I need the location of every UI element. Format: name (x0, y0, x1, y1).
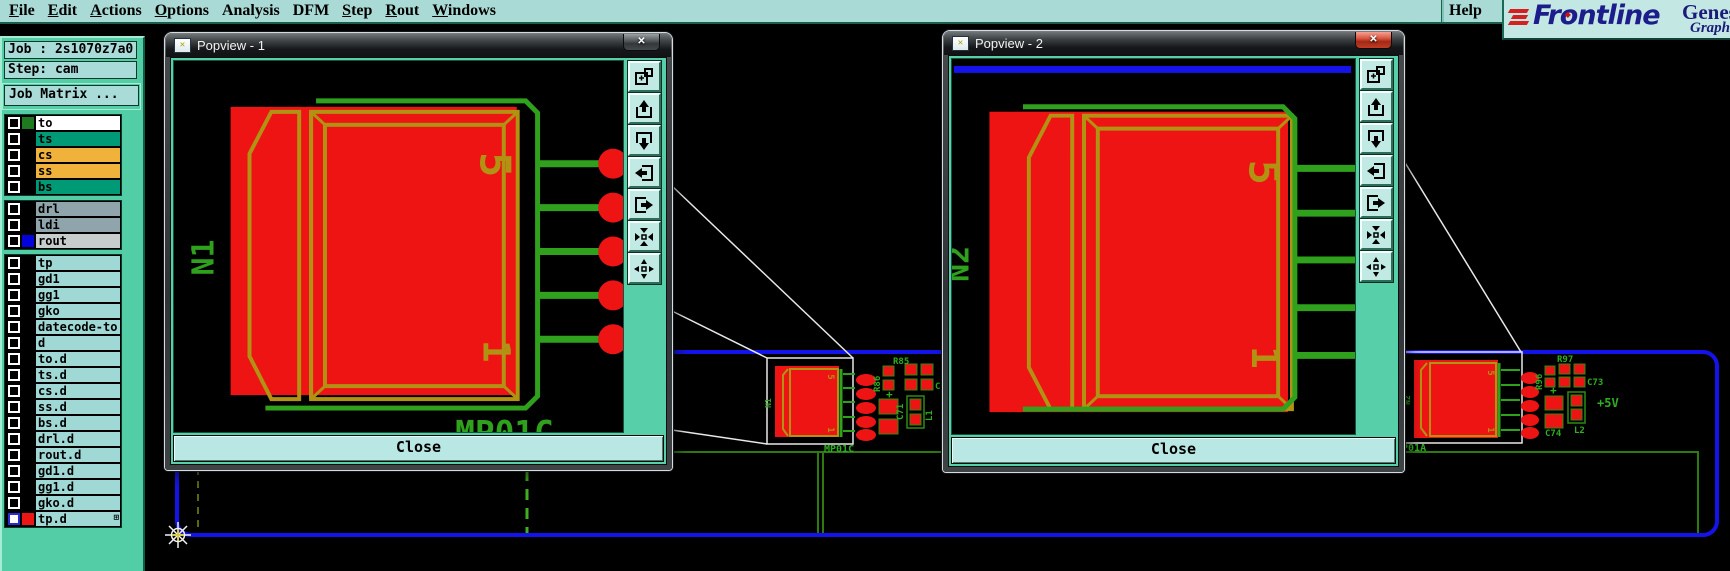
refdes-label: L1 (925, 410, 935, 421)
layer-color-swatch[interactable] (22, 433, 34, 445)
layer-visibility-checkbox[interactable] (8, 337, 20, 349)
layer-name-label[interactable]: bs.d (35, 415, 121, 431)
layer-color-swatch[interactable] (22, 149, 34, 161)
layer-color-swatch[interactable] (22, 165, 34, 177)
layer-visibility-checkbox[interactable] (8, 273, 20, 285)
layer-row-bs.d[interactable]: bs.d (5, 415, 121, 431)
layer-visibility-checkbox[interactable] (8, 117, 20, 129)
layer-color-swatch[interactable] (22, 203, 34, 215)
arrows-out-button[interactable] (1360, 251, 1393, 282)
refdes-label: R97 (1557, 355, 1573, 365)
layer-name-label[interactable]: drl.d (35, 431, 121, 447)
component-n2[interactable]: N2 5 1 (1403, 360, 1520, 438)
layer-color-swatch[interactable] (22, 401, 34, 413)
layer-name-label[interactable]: ss (35, 163, 121, 179)
new-view-button[interactable] (628, 61, 661, 92)
component-pins (538, 164, 609, 340)
footprint-label: MP01C (455, 414, 554, 432)
layer-color-swatch[interactable] (22, 257, 34, 269)
window-icon: ✕ (174, 38, 191, 53)
layer-row-d[interactable]: d (5, 335, 121, 351)
layer-name-label[interactable]: ldi (35, 217, 121, 233)
menu-separator (1441, 0, 1444, 22)
layer-color-swatch[interactable] (22, 513, 34, 525)
layer-row-cs[interactable]: cs (5, 147, 121, 163)
layer-color-swatch[interactable] (22, 369, 34, 381)
layer-row-gg1.d[interactable]: gg1.d (5, 479, 121, 495)
layer-row-tp.d[interactable]: tp.d⊞ (5, 511, 121, 527)
menu-file[interactable]: File (9, 2, 35, 20)
mini-pin5-label: 5 (825, 374, 835, 379)
layer-color-swatch[interactable] (22, 449, 34, 461)
layer-row-ss.d[interactable]: ss.d (5, 399, 121, 415)
arrows-out-button[interactable] (628, 253, 661, 284)
refdes-label: N1 (187, 239, 222, 275)
refdes-label: R96 (1535, 374, 1545, 390)
frontline-speedlines-icon (1509, 9, 1528, 27)
layer-color-swatch[interactable] (22, 497, 34, 509)
job-field[interactable]: Job : 2s1070z7a0 (4, 41, 137, 59)
component-n1[interactable]: N1 5 1 (764, 366, 855, 437)
layer-color-swatch[interactable] (22, 235, 34, 247)
polarity-plus-label: + (1550, 384, 1557, 397)
layer-visibility-checkbox[interactable] (8, 203, 20, 215)
pan-down-button[interactable] (628, 125, 661, 156)
layer-row-ts.d[interactable]: ts.d (5, 367, 121, 383)
layer-row-to[interactable]: to (5, 115, 121, 131)
layer-visibility-checkbox[interactable] (8, 149, 20, 161)
layer-name-label[interactable]: tp (35, 255, 121, 271)
refdes-label: C71 (896, 404, 906, 420)
layer-visibility-checkbox[interactable] (8, 369, 20, 381)
menu-bar: FileEditActionsOptionsAnalysisDFMStepRou… (0, 0, 1730, 24)
layer-color-swatch[interactable] (22, 133, 34, 145)
layer-name-label[interactable]: ss.d (35, 399, 121, 415)
job-matrix-button[interactable]: Job Matrix ... (4, 85, 139, 106)
layer-row-rout.d[interactable]: rout.d (5, 447, 121, 463)
layer-row-gd1.d[interactable]: gd1.d (5, 463, 121, 479)
layer-name-label[interactable]: tp.d⊞ (35, 511, 121, 527)
menu-dfm[interactable]: DFM (293, 2, 329, 20)
close-button[interactable]: Close (951, 437, 1396, 464)
pin1-label: 1 (1243, 346, 1287, 369)
pan-right-button[interactable] (1360, 187, 1393, 218)
menu-actions[interactable]: Actions (90, 2, 142, 20)
polarity-plus-label: + (886, 388, 893, 401)
pan-left-button[interactable] (1360, 155, 1393, 186)
refdes-label: C73 (1587, 378, 1603, 388)
layer-color-swatch[interactable] (22, 481, 34, 493)
layer-name-label[interactable]: bs (35, 179, 121, 195)
layer-visibility-checkbox[interactable] (8, 181, 20, 193)
layer-visibility-checkbox[interactable] (8, 497, 20, 509)
layer-visibility-checkbox[interactable] (8, 235, 20, 247)
genesis-cam-app: N1 5 1 R85 R86 C72 + C71 (0, 0, 1730, 571)
layer-visibility-checkbox[interactable] (8, 433, 20, 445)
step-field[interactable]: Step: cam (4, 61, 137, 79)
layer-name-label[interactable]: gko.d (35, 495, 121, 511)
popview2-body: N2 5 1 Close (948, 55, 1399, 467)
popview2-canvas[interactable]: N2 5 1 (951, 58, 1356, 435)
layer-color-swatch[interactable] (22, 117, 34, 129)
pan-left-button[interactable] (628, 157, 661, 188)
layer-row-ss[interactable]: ss (5, 163, 121, 179)
layer-color-swatch[interactable] (22, 273, 34, 285)
layer-color-swatch[interactable] (22, 219, 34, 231)
pin-pads (598, 149, 623, 354)
layer-name-label[interactable]: drl (35, 201, 121, 217)
layer-list: totscsssbsdrlldirouttpgd1gg1gkodatecode-… (4, 114, 122, 532)
pan-down-button[interactable] (1360, 123, 1393, 154)
layer-name-label[interactable]: ts (35, 131, 121, 147)
window-icon: ✕ (952, 36, 969, 51)
origin-marker-icon (165, 522, 191, 548)
layer-color-swatch[interactable] (22, 305, 34, 317)
frontline-logo: Frontline (1533, 0, 1660, 31)
pin1-label: 1 (474, 340, 518, 363)
layer-name-label[interactable]: d (35, 335, 121, 351)
module-name-label: MP01C (824, 444, 854, 455)
popview1-titlebar[interactable]: ✕ Popview - 1 (166, 34, 671, 57)
new-view-button[interactable] (1360, 59, 1393, 90)
popview2-titlebar[interactable]: ✕ Popview - 2 (944, 32, 1403, 55)
layer-name-label[interactable]: gko (35, 303, 121, 319)
layer-row-tp[interactable]: tp (5, 255, 121, 271)
help-label: Help (1449, 2, 1482, 20)
layer-visibility-checkbox[interactable] (8, 481, 20, 493)
copper-pad-region (231, 107, 517, 395)
layer-name-label[interactable]: gg1 (35, 287, 121, 303)
layer-visibility-checkbox[interactable] (8, 449, 20, 461)
popview1-body: N1 5 1 MP01C Close (170, 57, 667, 465)
layer-color-swatch[interactable] (22, 337, 34, 349)
layer-name-label[interactable]: rout (35, 233, 121, 249)
layer-visibility-checkbox[interactable] (8, 257, 20, 269)
net-label: +5V (1597, 396, 1619, 410)
layer-color-swatch[interactable] (22, 321, 34, 333)
close-button[interactable]: Close (173, 435, 664, 462)
pan-right-button[interactable] (628, 189, 661, 220)
layer-name-label[interactable]: datecode-to (35, 319, 121, 335)
arrows-in-button[interactable] (628, 221, 661, 252)
popview1-canvas[interactable]: N1 5 1 MP01C (173, 60, 624, 433)
layer-visibility-checkbox[interactable] (8, 353, 20, 365)
layer-group: totscsssbs (4, 114, 122, 196)
layer-name-label[interactable]: ts.d (35, 367, 121, 383)
mini-refdes-label: N2 (1403, 395, 1412, 405)
mini-pin5-label: 5 (1485, 370, 1495, 375)
window-title: Popview - 2 (975, 36, 1043, 51)
layer-row-ldi[interactable]: ldi (5, 217, 121, 233)
sidebar-panel: Job : 2s1070z7a0 Step: cam Job Matrix ..… (0, 36, 145, 571)
window-title: Popview - 1 (197, 38, 265, 53)
menu-edit[interactable]: Edit (48, 2, 77, 20)
layer-row-ts[interactable]: ts (5, 131, 121, 147)
layer-visibility-checkbox[interactable] (8, 465, 20, 477)
close-window-button[interactable]: ✕ (1355, 32, 1392, 49)
layer-row-rout[interactable]: rout (5, 233, 121, 249)
layer-visibility-checkbox[interactable] (8, 219, 20, 231)
refdes-label: R86 (873, 376, 883, 392)
board-edge-line (954, 66, 1351, 73)
pan-up-button[interactable] (1360, 91, 1393, 122)
layer-name-label[interactable]: cs.d (35, 383, 121, 399)
mini-pin1-label: 1 (825, 427, 835, 432)
refdes-label: R85 (893, 357, 909, 367)
layer-row-cs.d[interactable]: cs.d (5, 383, 121, 399)
layer-row-gko[interactable]: gko (5, 303, 121, 319)
menu-step[interactable]: Step (342, 2, 372, 20)
layer-visibility-checkbox[interactable] (8, 321, 20, 333)
component-pins (1295, 168, 1355, 355)
arrows-in-button[interactable] (1360, 219, 1393, 250)
layer-name-label[interactable]: to.d (35, 351, 121, 367)
popview1-window: ✕ Popview - 1 ✕ (165, 33, 672, 470)
layer-color-swatch[interactable] (22, 417, 34, 429)
layer-name-label[interactable]: rout.d (35, 447, 121, 463)
layer-color-swatch[interactable] (22, 181, 34, 193)
product-subname: Graph (1690, 20, 1730, 37)
refdes-label: C74 (1545, 429, 1562, 439)
left-parts-cluster: R85 R86 C72 + C71 L1 MP01C (824, 357, 951, 455)
layer-row-gko.d[interactable]: gko.d (5, 495, 121, 511)
grid-icon: ⊞ (114, 514, 119, 523)
layer-visibility-checkbox[interactable] (8, 289, 20, 301)
layer-visibility-checkbox[interactable] (8, 133, 20, 145)
sidebar: Job : 2s1070z7a0 Step: cam Job Matrix ..… (0, 24, 147, 571)
pan-up-button[interactable] (628, 93, 661, 124)
mini-pin1-label: 1 (1485, 427, 1495, 432)
layer-visibility-checkbox[interactable] (8, 165, 20, 177)
layer-name-label[interactable]: to (35, 115, 121, 131)
brand-panel: Frontline Genes Graph (1502, 0, 1730, 40)
layer-visibility-checkbox[interactable] (8, 385, 20, 397)
menu-rout[interactable]: Rout (385, 2, 419, 20)
layer-name-label[interactable]: gd1.d (35, 463, 121, 479)
popview-toolbar (624, 60, 664, 433)
layer-row-bs[interactable]: bs (5, 179, 121, 195)
menu-help[interactable]: Help (1449, 0, 1482, 22)
layer-row-gg1[interactable]: gg1 (5, 287, 121, 303)
menu-windows[interactable]: Windows (432, 2, 496, 20)
layer-name-label[interactable]: cs (35, 147, 121, 163)
layer-row-drl.d[interactable]: drl.d (5, 431, 121, 447)
layer-visibility-checkbox[interactable] (8, 305, 20, 317)
layer-group: tpgd1gg1gkodatecode-todto.dts.dcs.dss.db… (4, 254, 122, 528)
layer-visibility-checkbox[interactable] (8, 513, 20, 525)
pin5-label: 5 (470, 152, 519, 177)
layer-row-to.d[interactable]: to.d (5, 351, 121, 367)
close-window-button[interactable]: ✕ (623, 34, 660, 51)
layer-name-label[interactable]: gd1 (35, 271, 121, 287)
menu-options[interactable]: Options (155, 2, 209, 20)
refdes-label: N2 (952, 246, 977, 282)
pin5-label: 5 (1240, 160, 1289, 185)
layer-name-label[interactable]: gg1.d (35, 479, 121, 495)
popview-toolbar (1356, 58, 1396, 435)
layer-row-drl[interactable]: drl (5, 201, 121, 217)
mini-refdes-label: N1 (764, 398, 773, 408)
layer-visibility-checkbox[interactable] (8, 417, 20, 429)
layer-visibility-checkbox[interactable] (8, 401, 20, 413)
layer-color-swatch[interactable] (22, 289, 34, 301)
job-matrix-frame: Job Matrix ... (2, 83, 141, 110)
layer-color-swatch[interactable] (22, 385, 34, 397)
refdes-label: L2 (1574, 426, 1585, 436)
popview2-window: ✕ Popview - 2 ✕ (943, 31, 1404, 472)
layer-row-datecode-to[interactable]: datecode-to (5, 319, 121, 335)
layer-color-swatch[interactable] (22, 353, 34, 365)
menu-analysis[interactable]: Analysis (222, 2, 280, 20)
layer-color-swatch[interactable] (22, 465, 34, 477)
layer-group: drlldirout (4, 200, 122, 250)
layer-row-gd1[interactable]: gd1 (5, 271, 121, 287)
